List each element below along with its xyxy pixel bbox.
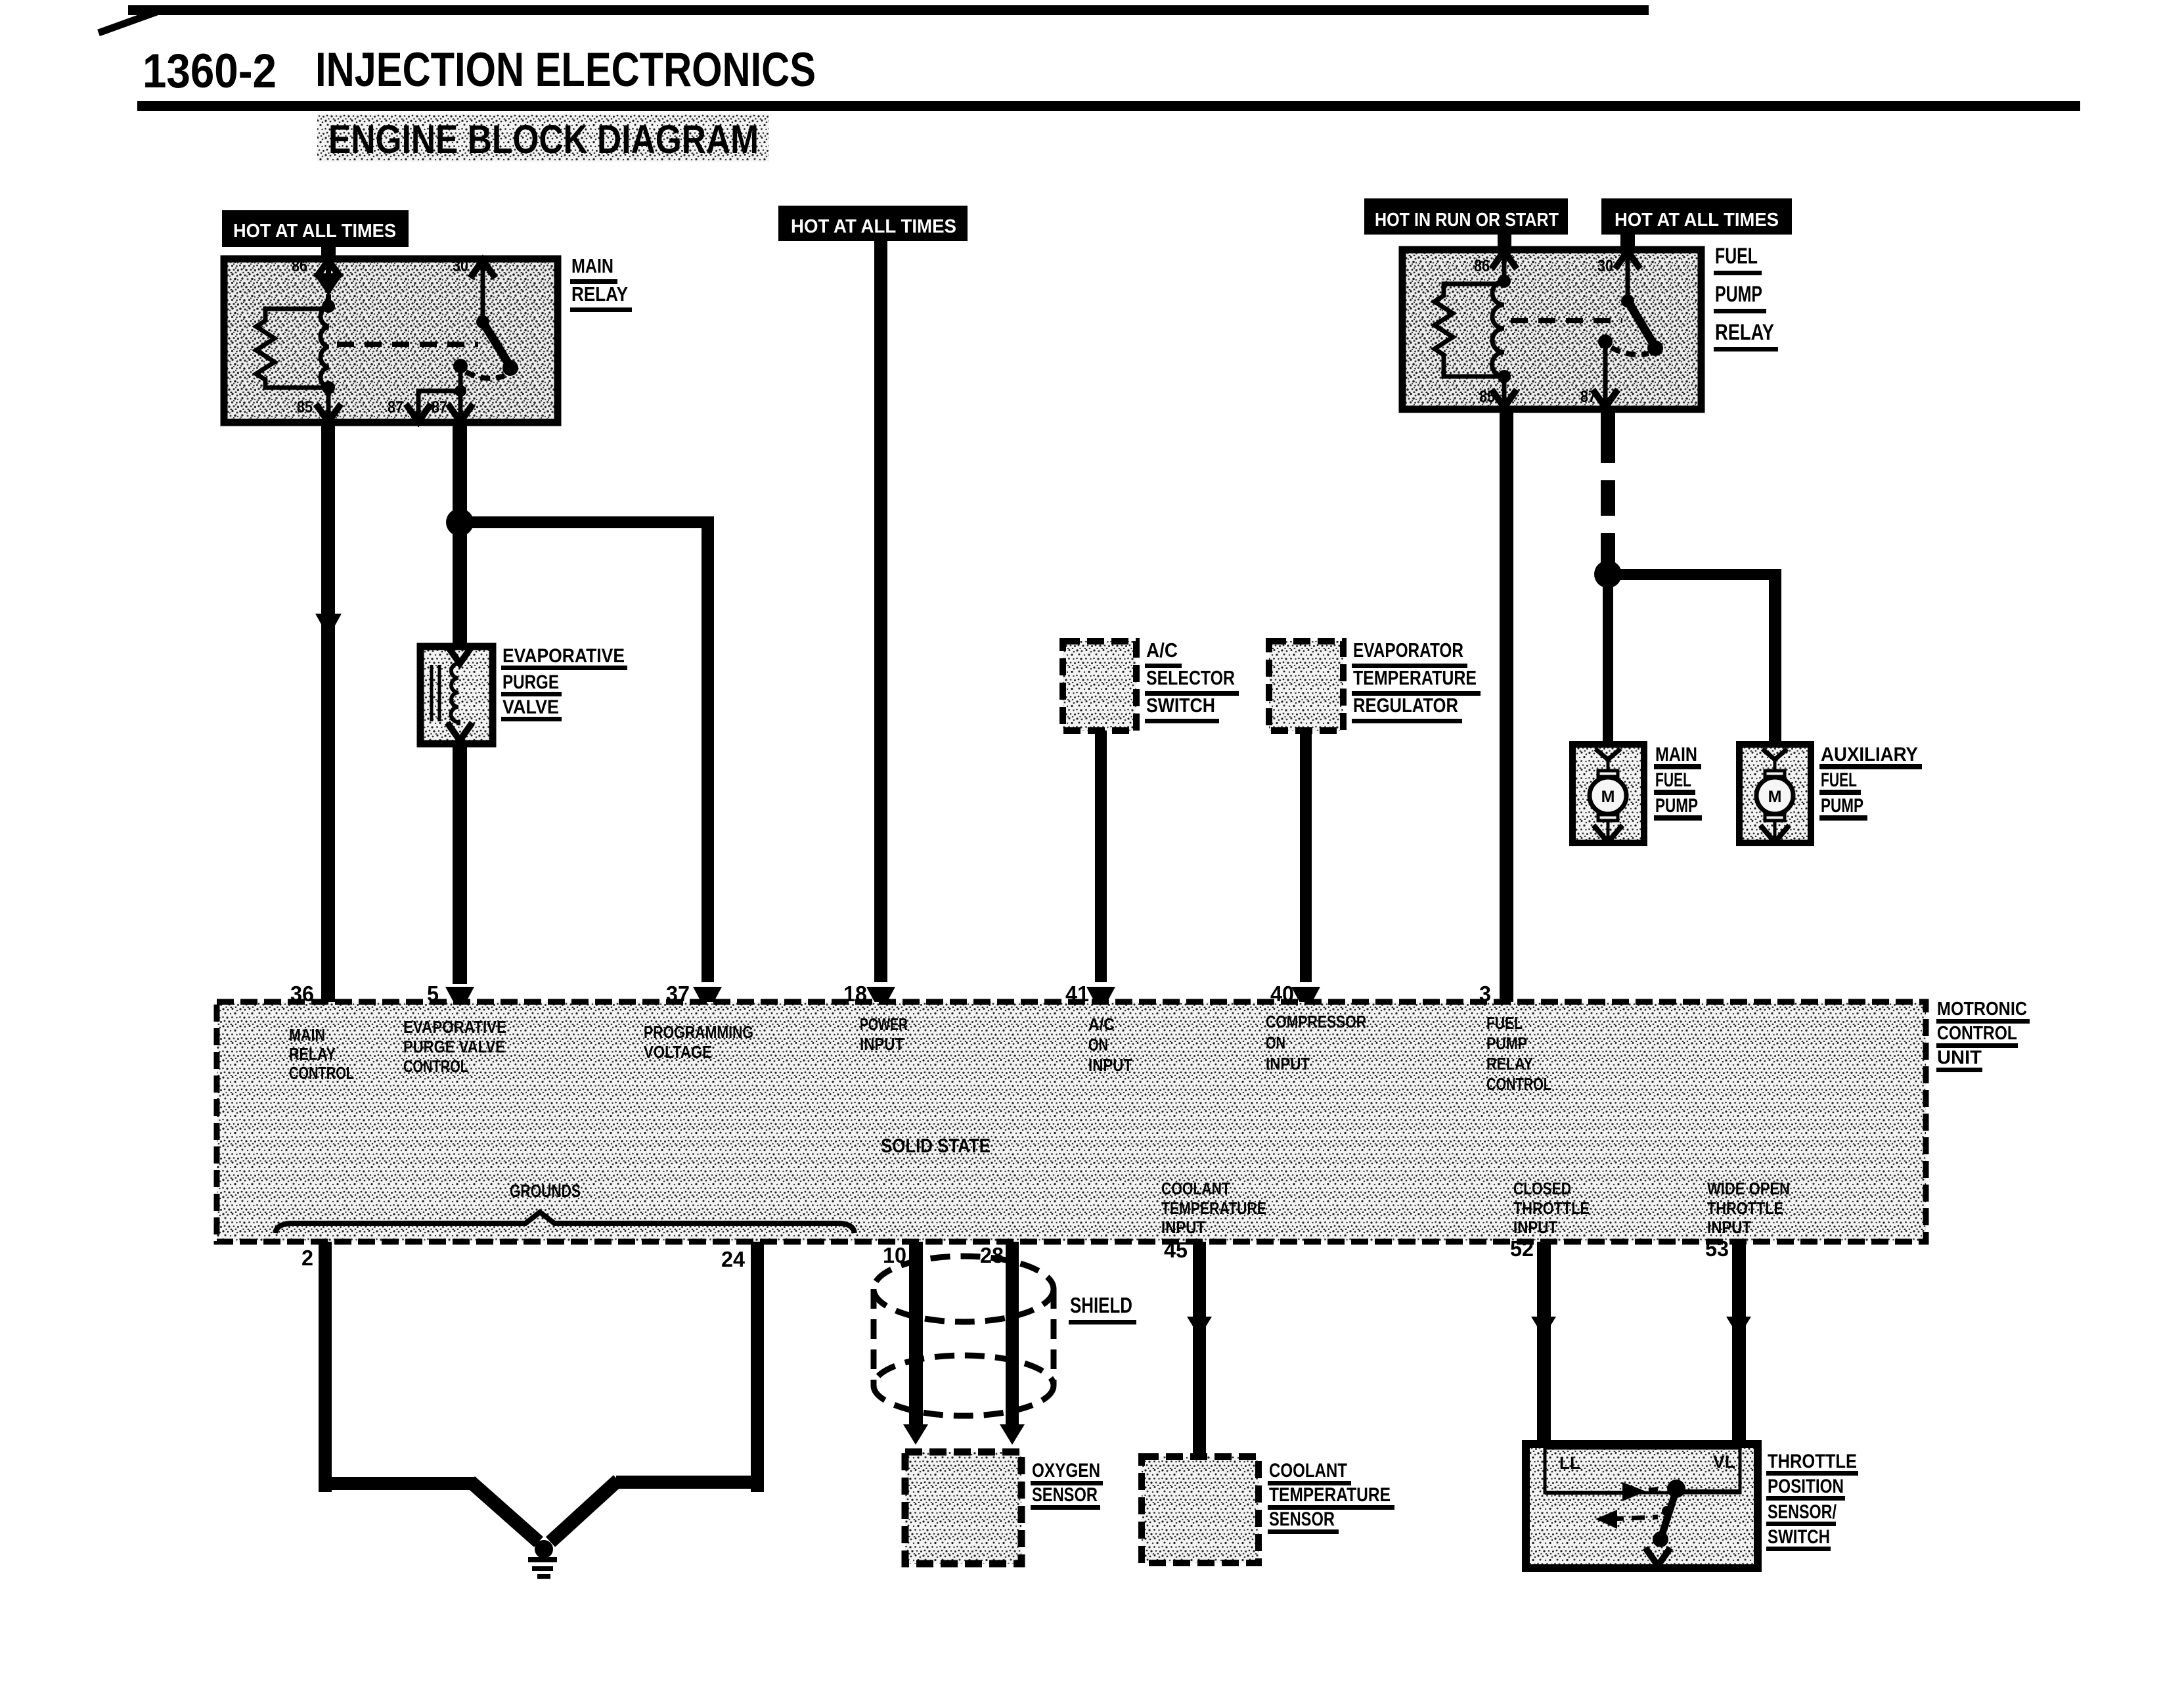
svg-text:ON: ON bbox=[1088, 1035, 1108, 1054]
svg-text:86: 86 bbox=[292, 257, 307, 275]
svg-text:POWER: POWER bbox=[860, 1014, 908, 1034]
svg-text:3: 3 bbox=[1479, 982, 1491, 1006]
svg-text:OXYGEN: OXYGEN bbox=[1032, 1460, 1100, 1482]
svg-text:5: 5 bbox=[427, 982, 439, 1006]
svg-text:GROUNDS: GROUNDS bbox=[510, 1181, 581, 1201]
svg-text:COOLANT: COOLANT bbox=[1269, 1460, 1347, 1482]
svg-text:24: 24 bbox=[721, 1247, 746, 1271]
svg-text:TEMPERATURE: TEMPERATURE bbox=[1269, 1484, 1391, 1506]
svg-text:EVAPORATIVE: EVAPORATIVE bbox=[403, 1017, 506, 1037]
svg-text:FUEL: FUEL bbox=[1821, 769, 1857, 791]
svg-text:M: M bbox=[1768, 788, 1782, 806]
svg-text:SWITCH: SWITCH bbox=[1768, 1526, 1830, 1548]
svg-text:SENSOR/: SENSOR/ bbox=[1768, 1501, 1837, 1523]
svg-text:CONTROL: CONTROL bbox=[1486, 1074, 1551, 1094]
svg-text:INPUT: INPUT bbox=[1707, 1217, 1751, 1237]
svg-text:INPUT: INPUT bbox=[1513, 1217, 1557, 1237]
svg-text:TEMPERATURE: TEMPERATURE bbox=[1353, 666, 1477, 689]
svg-text:PUMP: PUMP bbox=[1486, 1033, 1527, 1053]
svg-text:87: 87 bbox=[1580, 388, 1596, 406]
svg-text:PURGE VALVE: PURGE VALVE bbox=[403, 1037, 505, 1056]
svg-text:CONTROL: CONTROL bbox=[289, 1063, 354, 1083]
svg-text:RELAY: RELAY bbox=[1715, 320, 1774, 345]
svg-text:INPUT: INPUT bbox=[860, 1034, 904, 1054]
svg-text:AUXILIARY: AUXILIARY bbox=[1821, 744, 1918, 765]
svg-text:LL: LL bbox=[1559, 1453, 1580, 1473]
svg-text:RELAY: RELAY bbox=[1486, 1054, 1533, 1074]
svg-text:1360-2: 1360-2 bbox=[143, 45, 277, 98]
svg-text:INJECTION ELECTRONICS: INJECTION ELECTRONICS bbox=[315, 43, 816, 97]
svg-text:CONTROL: CONTROL bbox=[403, 1056, 468, 1076]
svg-text:SOLID STATE: SOLID STATE bbox=[881, 1135, 991, 1157]
svg-text:45: 45 bbox=[1164, 1238, 1188, 1262]
svg-text:86: 86 bbox=[1474, 257, 1490, 275]
svg-text:HOT AT ALL TIMES: HOT AT ALL TIMES bbox=[791, 216, 956, 237]
svg-text:PROGRAMMING: PROGRAMMING bbox=[644, 1022, 753, 1042]
svg-text:WIDE OPEN: WIDE OPEN bbox=[1707, 1179, 1790, 1198]
svg-text:A/C: A/C bbox=[1146, 639, 1178, 662]
svg-text:REGULATOR: REGULATOR bbox=[1353, 694, 1458, 717]
svg-text:40: 40 bbox=[1270, 982, 1294, 1006]
svg-text:FUEL: FUEL bbox=[1655, 769, 1691, 791]
svg-text:THROTTLE: THROTTLE bbox=[1707, 1198, 1783, 1218]
svg-text:HOT IN RUN OR START: HOT IN RUN OR START bbox=[1375, 210, 1559, 231]
svg-text:SENSOR: SENSOR bbox=[1269, 1508, 1335, 1530]
svg-text:VALVE: VALVE bbox=[502, 696, 559, 718]
svg-text:EVAPORATOR: EVAPORATOR bbox=[1353, 639, 1463, 662]
svg-text:PUMP: PUMP bbox=[1715, 282, 1762, 307]
svg-text:87: 87 bbox=[432, 398, 447, 417]
svg-text:MOTRONIC: MOTRONIC bbox=[1937, 999, 2027, 1020]
svg-text:41: 41 bbox=[1065, 982, 1089, 1006]
svg-text:36: 36 bbox=[290, 982, 314, 1006]
svg-text:EVAPORATIVE: EVAPORATIVE bbox=[502, 645, 625, 667]
svg-text:UNIT: UNIT bbox=[1937, 1047, 1982, 1068]
svg-text:INPUT: INPUT bbox=[1161, 1217, 1205, 1237]
svg-text:MAIN: MAIN bbox=[571, 254, 613, 277]
svg-text:53: 53 bbox=[1705, 1236, 1729, 1261]
svg-text:SHIELD: SHIELD bbox=[1070, 1293, 1132, 1317]
svg-text:POSITION: POSITION bbox=[1768, 1476, 1844, 1497]
svg-text:HOT AT ALL TIMES: HOT AT ALL TIMES bbox=[233, 221, 396, 242]
svg-text:PUMP: PUMP bbox=[1821, 795, 1863, 817]
svg-text:THROTTLE: THROTTLE bbox=[1513, 1198, 1590, 1218]
svg-text:MAIN: MAIN bbox=[289, 1025, 325, 1045]
svg-text:M: M bbox=[1601, 788, 1615, 806]
svg-text:ENGINE BLOCK DIAGRAM: ENGINE BLOCK DIAGRAM bbox=[328, 117, 759, 162]
svg-text:85: 85 bbox=[297, 398, 313, 417]
svg-text:HOT AT ALL TIMES: HOT AT ALL TIMES bbox=[1615, 210, 1779, 231]
svg-text:RELAY: RELAY bbox=[289, 1044, 336, 1064]
svg-text:37: 37 bbox=[666, 982, 690, 1006]
svg-text:30: 30 bbox=[453, 257, 468, 275]
svg-text:COMPRESSOR: COMPRESSOR bbox=[1266, 1012, 1366, 1031]
svg-text:52: 52 bbox=[1510, 1236, 1534, 1261]
svg-text:INPUT: INPUT bbox=[1088, 1055, 1132, 1075]
svg-text:TEMPERATURE: TEMPERATURE bbox=[1161, 1198, 1266, 1218]
svg-text:CONTROL: CONTROL bbox=[1937, 1023, 2017, 1044]
svg-text:CLOSED: CLOSED bbox=[1513, 1179, 1571, 1198]
svg-text:SELECTOR: SELECTOR bbox=[1146, 666, 1235, 689]
svg-text:VL: VL bbox=[1713, 1452, 1735, 1472]
svg-text:RELAY: RELAY bbox=[571, 283, 628, 305]
svg-text:MAIN: MAIN bbox=[1655, 744, 1697, 765]
svg-text:COOLANT: COOLANT bbox=[1161, 1179, 1230, 1198]
svg-text:SENSOR: SENSOR bbox=[1032, 1484, 1098, 1506]
svg-text:FUEL: FUEL bbox=[1715, 244, 1758, 269]
svg-text:SWITCH: SWITCH bbox=[1146, 694, 1215, 717]
svg-text:PURGE: PURGE bbox=[502, 671, 559, 693]
svg-text:30: 30 bbox=[1597, 257, 1613, 275]
svg-text:2: 2 bbox=[301, 1246, 313, 1270]
svg-text:PUMP: PUMP bbox=[1655, 795, 1698, 817]
svg-text:FUEL: FUEL bbox=[1486, 1013, 1523, 1033]
svg-text:INPUT: INPUT bbox=[1266, 1054, 1310, 1074]
svg-text:A/C: A/C bbox=[1088, 1014, 1115, 1034]
svg-text:87: 87 bbox=[388, 398, 403, 417]
svg-text:18: 18 bbox=[843, 982, 867, 1006]
svg-text:THROTTLE: THROTTLE bbox=[1768, 1451, 1857, 1472]
svg-text:85: 85 bbox=[1479, 388, 1495, 406]
svg-text:VOLTAGE: VOLTAGE bbox=[644, 1042, 712, 1062]
svg-text:ON: ON bbox=[1266, 1033, 1285, 1052]
